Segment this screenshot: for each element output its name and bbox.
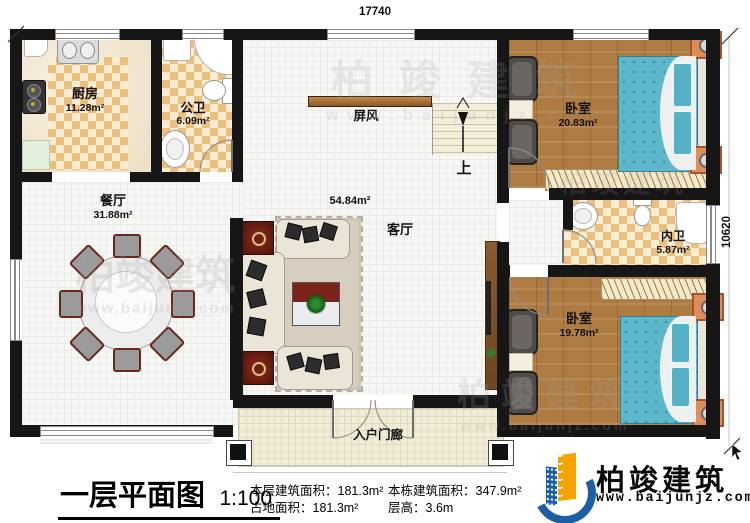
wardrobe-bedroom1-b [506,119,538,165]
kitchen-window [55,29,120,40]
bed1-pillow [672,62,693,108]
label-inner-bath: 内卫 5.87m² [643,230,703,256]
dim-tick [722,28,738,44]
dimension-right: 10620 [721,196,733,248]
label-kitchen: 厨房 11.28m² [50,87,120,114]
brand-logo-icon [534,452,592,516]
public-bath-window [182,29,224,40]
living-window [327,29,415,40]
label-bedroom2: 卧室 19.78m² [546,312,612,339]
side-table-bottom [242,351,274,385]
table-ornament [252,362,266,376]
room-area: 31.88m² [80,209,146,221]
wall-kitchen-bath [151,40,162,172]
kitchen-stove [22,80,46,114]
staircase [432,103,498,155]
label-screen: 屏风 [342,109,390,123]
dining-chair [113,234,141,258]
wall-bedroom1-bottom-a [497,188,509,200]
wall-living-bedrooms-top [497,40,509,203]
room-area: 54.84m² [330,195,371,207]
wall-bedroom2-bottom [497,425,720,437]
sofa-pillow [302,226,319,243]
wall-kitchen-bottom-b [130,172,162,182]
table-ornament [252,232,266,246]
wall-dining-living [230,218,243,400]
bedroom1-window [573,29,649,40]
room-name: 客厅 [387,222,413,237]
wall-inner-bath-left [563,200,573,230]
room-name: 卧室 [566,311,592,326]
toilet-inner [631,196,653,226]
label-porch: 入户门廊 [338,428,418,442]
logo-building-blue [546,466,557,505]
room-area: 11.28m² [50,102,120,114]
label-dining: 餐厅 31.88m² [80,194,146,221]
potted-plant [307,295,325,313]
folding-screen [308,96,432,107]
label-living: 客厅 [372,223,428,238]
label-stairs-up: 上 [454,160,474,177]
logo-building-orange [558,453,576,501]
wardrobe-bedroom1-a [506,56,538,102]
sink-public [160,130,190,168]
room-name: 内卫 [661,229,685,243]
room-name: 卧室 [565,101,591,116]
wardrobe-bedroom2-b [506,371,538,415]
wall-living-bottom-b [413,395,510,408]
bed2-pillow [670,366,691,408]
label-public-bath: 公卫 6.09m² [162,101,224,127]
wardrobe-bedroom2-a [506,309,538,355]
dining-left-window [10,259,22,341]
dining-chair [59,290,83,318]
room-name: 入户门廊 [353,428,403,442]
stat-floor-height: 层高：3.6m [388,497,453,516]
sofa-pillow [323,353,340,370]
brand-url: www.baijunjz.com [596,491,750,506]
plan-title-block: 一层平面图 1:100 [58,472,280,520]
dining-bottom-window [40,426,214,437]
floor-plan-canvas: 厨房 11.28m² 公卫 6.09m² 餐厅 31.88m² 54.84m² … [0,0,750,523]
sofa-pillow [305,357,323,375]
tv-screen [486,281,491,335]
label-living-area: 54.84m² [318,195,382,208]
dining-chair [113,348,141,372]
stairs-up-label: 上 [456,160,471,177]
dining-chair [171,290,195,318]
stat-land-area: 占地面积：181.3m² [250,497,358,516]
wall-left [10,29,22,437]
dimension-top: 17740 [352,6,398,18]
inner-bath-window [706,205,720,264]
sofa-pillow [247,317,267,337]
plan-title: 一层平面图 [60,480,205,512]
wall-bath-right [232,40,243,182]
room-area: 19.78m² [546,327,612,339]
bed2-pillow [670,322,691,364]
room-name: 厨房 [72,86,98,101]
coffee-table [292,282,340,326]
wall-bedroom1-bottom-b [549,188,720,200]
wall-bedroom2-top-a [497,265,510,277]
wall-living-bottom-a [233,395,333,408]
screen-label: 屏风 [353,109,378,123]
bed1-pillow [672,110,693,156]
vestibule-floor [509,200,563,265]
small-plant [487,349,495,357]
footer: 一层平面图 1:100 本层建筑面积：181.3m² 占地面积：181.3m² … [0,450,750,523]
room-area: 20.83m² [546,117,610,129]
toilet-public [202,76,234,104]
room-area: 5.87m² [643,244,703,256]
wardrobe-light-box [509,100,533,119]
wall-kitchen-bottom-a [22,172,52,182]
wall-bedroom2-top-b [548,265,720,277]
room-name: 餐厅 [100,193,126,208]
wardrobe-light-box [509,353,533,371]
kitchen-cabinet [22,140,50,170]
side-table-top [242,221,274,255]
room-name: 公卫 [180,101,205,115]
label-bedroom1: 卧室 20.83m² [546,102,610,129]
room-area: 6.09m² [162,115,224,127]
wall-bath-bottom [162,172,200,182]
kitchen-sink [57,36,99,64]
